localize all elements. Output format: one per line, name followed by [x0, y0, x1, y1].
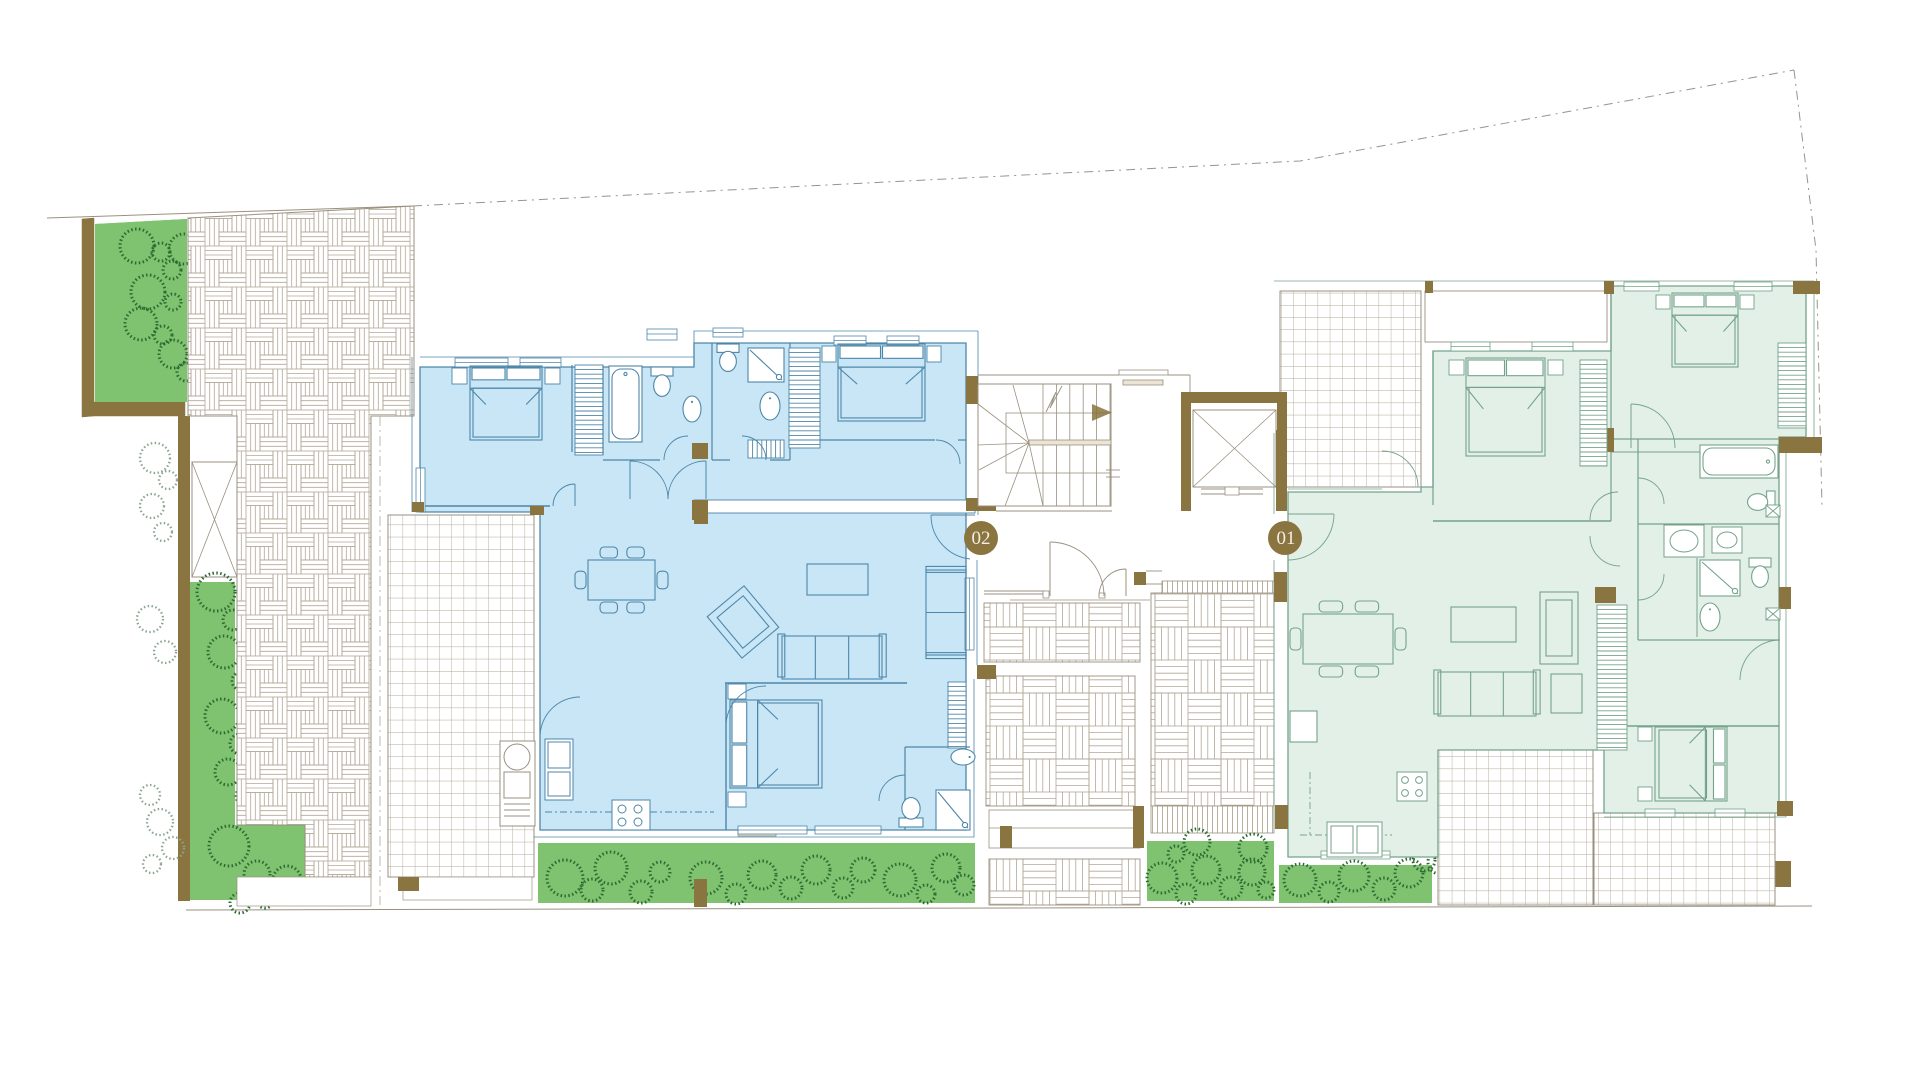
- svg-text:02: 02: [972, 528, 991, 549]
- svg-text:01: 01: [1277, 528, 1296, 549]
